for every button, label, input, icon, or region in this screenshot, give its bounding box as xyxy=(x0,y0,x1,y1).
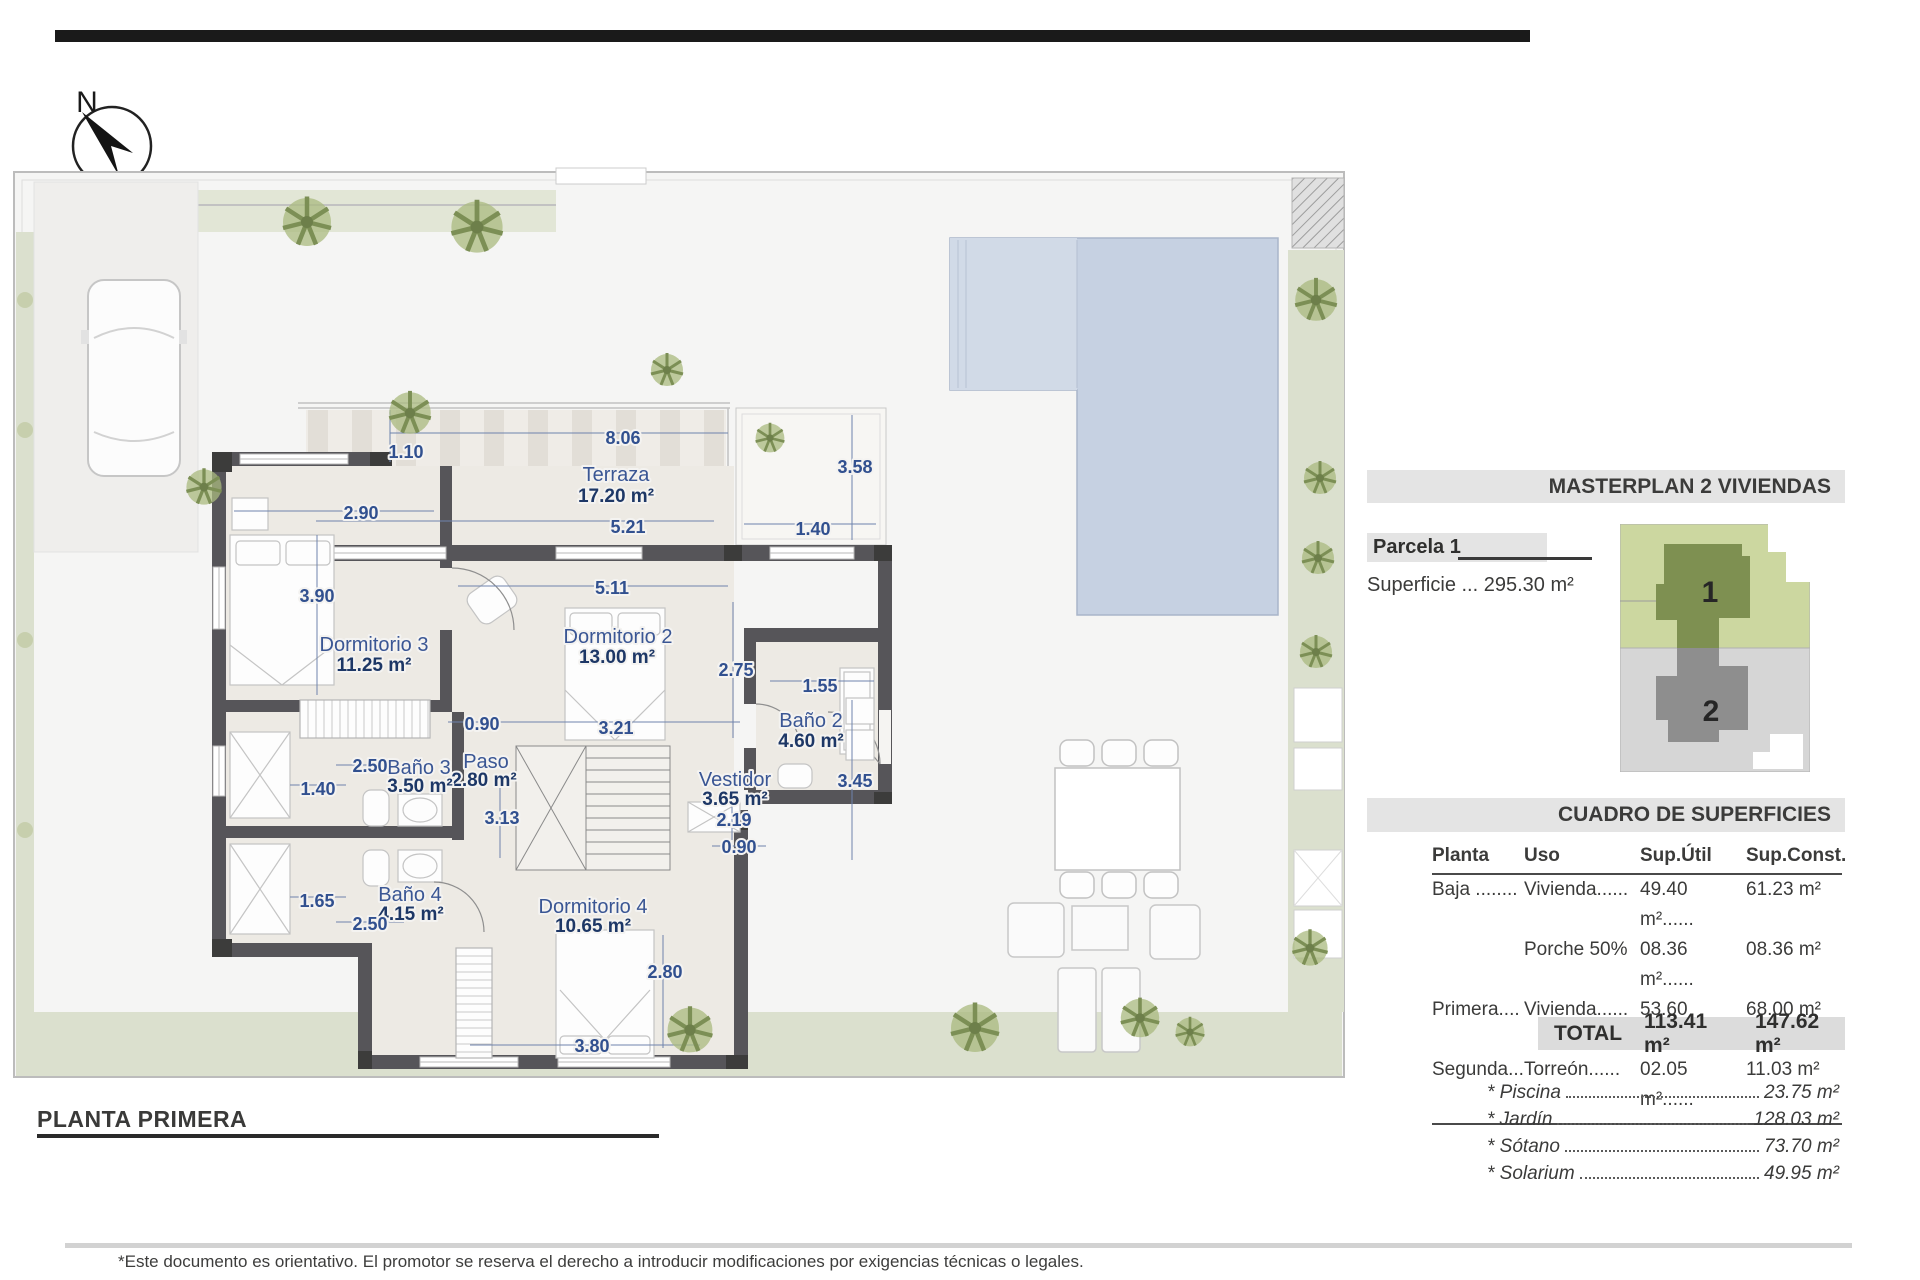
masterplan-unit-2: 2 xyxy=(1703,695,1720,728)
col-header: Planta xyxy=(1432,845,1524,867)
plan-title: PLANTA PRIMERA xyxy=(37,1106,247,1133)
plan-title-rule xyxy=(37,1134,659,1138)
room-label-bano4: Baño 4 xyxy=(378,884,441,906)
cell: 08.36 m²...... xyxy=(1640,935,1746,995)
extra-value: 73.70 m² xyxy=(1764,1136,1839,1158)
room-area-terraza: 17.20 m² xyxy=(578,486,654,507)
superficie-value: Superficie ... 295.30 m² xyxy=(1367,574,1574,597)
top-rule xyxy=(55,30,1530,42)
room-label-dormitorio2: Dormitorio 2 xyxy=(564,626,673,648)
cell: Porche 50% xyxy=(1524,935,1640,995)
extra-value: 128.03 m² xyxy=(1753,1109,1839,1131)
surfaces-table-header: Planta Uso Sup.Útil Sup.Const. xyxy=(1432,845,1842,875)
dim-label: 3.45 xyxy=(837,771,872,791)
north-label: N xyxy=(76,86,98,119)
list-item: * Piscina 23.75 m² xyxy=(1487,1082,1839,1109)
room-label-dormitorio3: Dormitorio 3 xyxy=(320,634,429,656)
room-area-dormitorio2: 13.00 m² xyxy=(579,647,655,668)
cell xyxy=(1432,935,1524,995)
north-arrow-icon: N xyxy=(73,86,151,185)
parcela-underline xyxy=(1458,557,1592,560)
total-label: TOTAL xyxy=(1554,1022,1622,1046)
extra-label: * Solarium xyxy=(1487,1163,1575,1185)
cell: Baja ........ xyxy=(1432,875,1524,935)
cell: Vivienda...... xyxy=(1524,875,1640,935)
extra-label: * Jardín xyxy=(1487,1109,1552,1131)
neighbor-structure xyxy=(1292,178,1344,248)
extras-list: * Piscina 23.75 m² * Jardín 128.03 m² * … xyxy=(1487,1082,1839,1190)
col-header: Sup.Útil xyxy=(1640,845,1746,867)
list-item: * Solarium 49.95 m² xyxy=(1487,1163,1839,1190)
room-label-terraza: Terraza xyxy=(583,464,651,486)
stairs xyxy=(516,746,670,870)
cell: 61.23 m² xyxy=(1746,875,1842,935)
dim-label: 1.40 xyxy=(795,519,830,539)
cell: Primera.... xyxy=(1432,995,1524,1055)
col-header: Sup.Const. xyxy=(1746,845,1842,867)
dining-table xyxy=(1055,740,1180,898)
masterplan-title: MASTERPLAN 2 VIVIENDAS xyxy=(1367,470,1845,503)
dim-label: 2.90 xyxy=(343,503,378,523)
dim-label: 5.21 xyxy=(610,517,645,537)
list-item: * Sótano 73.70 m² xyxy=(1487,1136,1839,1163)
driveway xyxy=(34,182,198,552)
dim-label: 5.11 xyxy=(595,578,629,598)
dim-label: 1.55 xyxy=(802,676,837,696)
dim-label: 1.40 xyxy=(300,779,335,799)
room-area-bano2: 4.60 m² xyxy=(778,731,843,752)
room-label-vestidor: Vestidor xyxy=(699,769,772,791)
entrance-steps xyxy=(556,168,646,184)
dim-label: 3.80 xyxy=(574,1036,609,1056)
dim-label: 2.80 xyxy=(647,962,682,982)
table-row: Porche 50% 08.36 m²...... 08.36 m² xyxy=(1432,935,1842,995)
table-row: Baja ........ Vivienda...... 49.40 m²...… xyxy=(1432,875,1842,935)
extra-value: 23.75 m² xyxy=(1764,1082,1839,1104)
cell: 49.40 m²...... xyxy=(1640,875,1746,935)
dim-label: 8.06 xyxy=(605,428,640,448)
room-area-dormitorio4: 10.65 m² xyxy=(555,916,631,937)
col-header: Uso xyxy=(1524,845,1640,867)
room-area-bano4: 4.15 m² xyxy=(378,904,443,925)
dim-label: 3.90 xyxy=(299,586,334,606)
masterplan-diagram: 1 2 xyxy=(1620,524,1810,772)
room-area-dormitorio3: 11.25 m² xyxy=(337,655,412,676)
room-area-paso: 2.80 m² xyxy=(451,770,516,791)
total-row: TOTAL 113.41 m² 147.62 m² xyxy=(1538,1017,1845,1050)
dim-label: 3.58 xyxy=(837,457,872,477)
plan-sheet: N xyxy=(0,0,1920,1280)
extra-label: * Piscina xyxy=(1487,1082,1561,1104)
dim-label: 2.50 xyxy=(352,914,387,934)
room-area-vestidor: 3.65 m² xyxy=(702,789,767,810)
cell: 08.36 m² xyxy=(1746,935,1842,995)
dim-label: 2.19 xyxy=(716,810,751,830)
dim-label: 0.90 xyxy=(464,714,499,734)
total-util: 113.41 m² xyxy=(1644,1010,1733,1058)
room-label-bano2: Baño 2 xyxy=(779,710,842,732)
extra-value: 49.95 m² xyxy=(1764,1163,1839,1185)
total-const: 147.62 m² xyxy=(1755,1010,1845,1058)
room-label-dormitorio4: Dormitorio 4 xyxy=(539,896,648,918)
disclaimer-text: *Este documento es orientativo. El promo… xyxy=(118,1252,1084,1272)
dim-label: 2.75 xyxy=(718,660,753,680)
extra-label: * Sótano xyxy=(1487,1136,1560,1158)
dim-label: 1.65 xyxy=(299,891,334,911)
dim-label: 3.13 xyxy=(484,808,519,828)
dim-label: 1.10 xyxy=(388,442,423,462)
dim-label: 0.90 xyxy=(721,837,756,857)
dim-label: 3.21 xyxy=(598,718,633,738)
dim-label: 2.50 xyxy=(352,756,387,776)
room-area-bano3: 3.50 m² xyxy=(387,776,452,797)
cuadro-title: CUADRO DE SUPERFICIES xyxy=(1367,798,1845,832)
footer-divider xyxy=(65,1243,1852,1248)
list-item: * Jardín 128.03 m² xyxy=(1487,1109,1839,1136)
masterplan-unit-1: 1 xyxy=(1702,576,1719,609)
car xyxy=(81,280,187,476)
